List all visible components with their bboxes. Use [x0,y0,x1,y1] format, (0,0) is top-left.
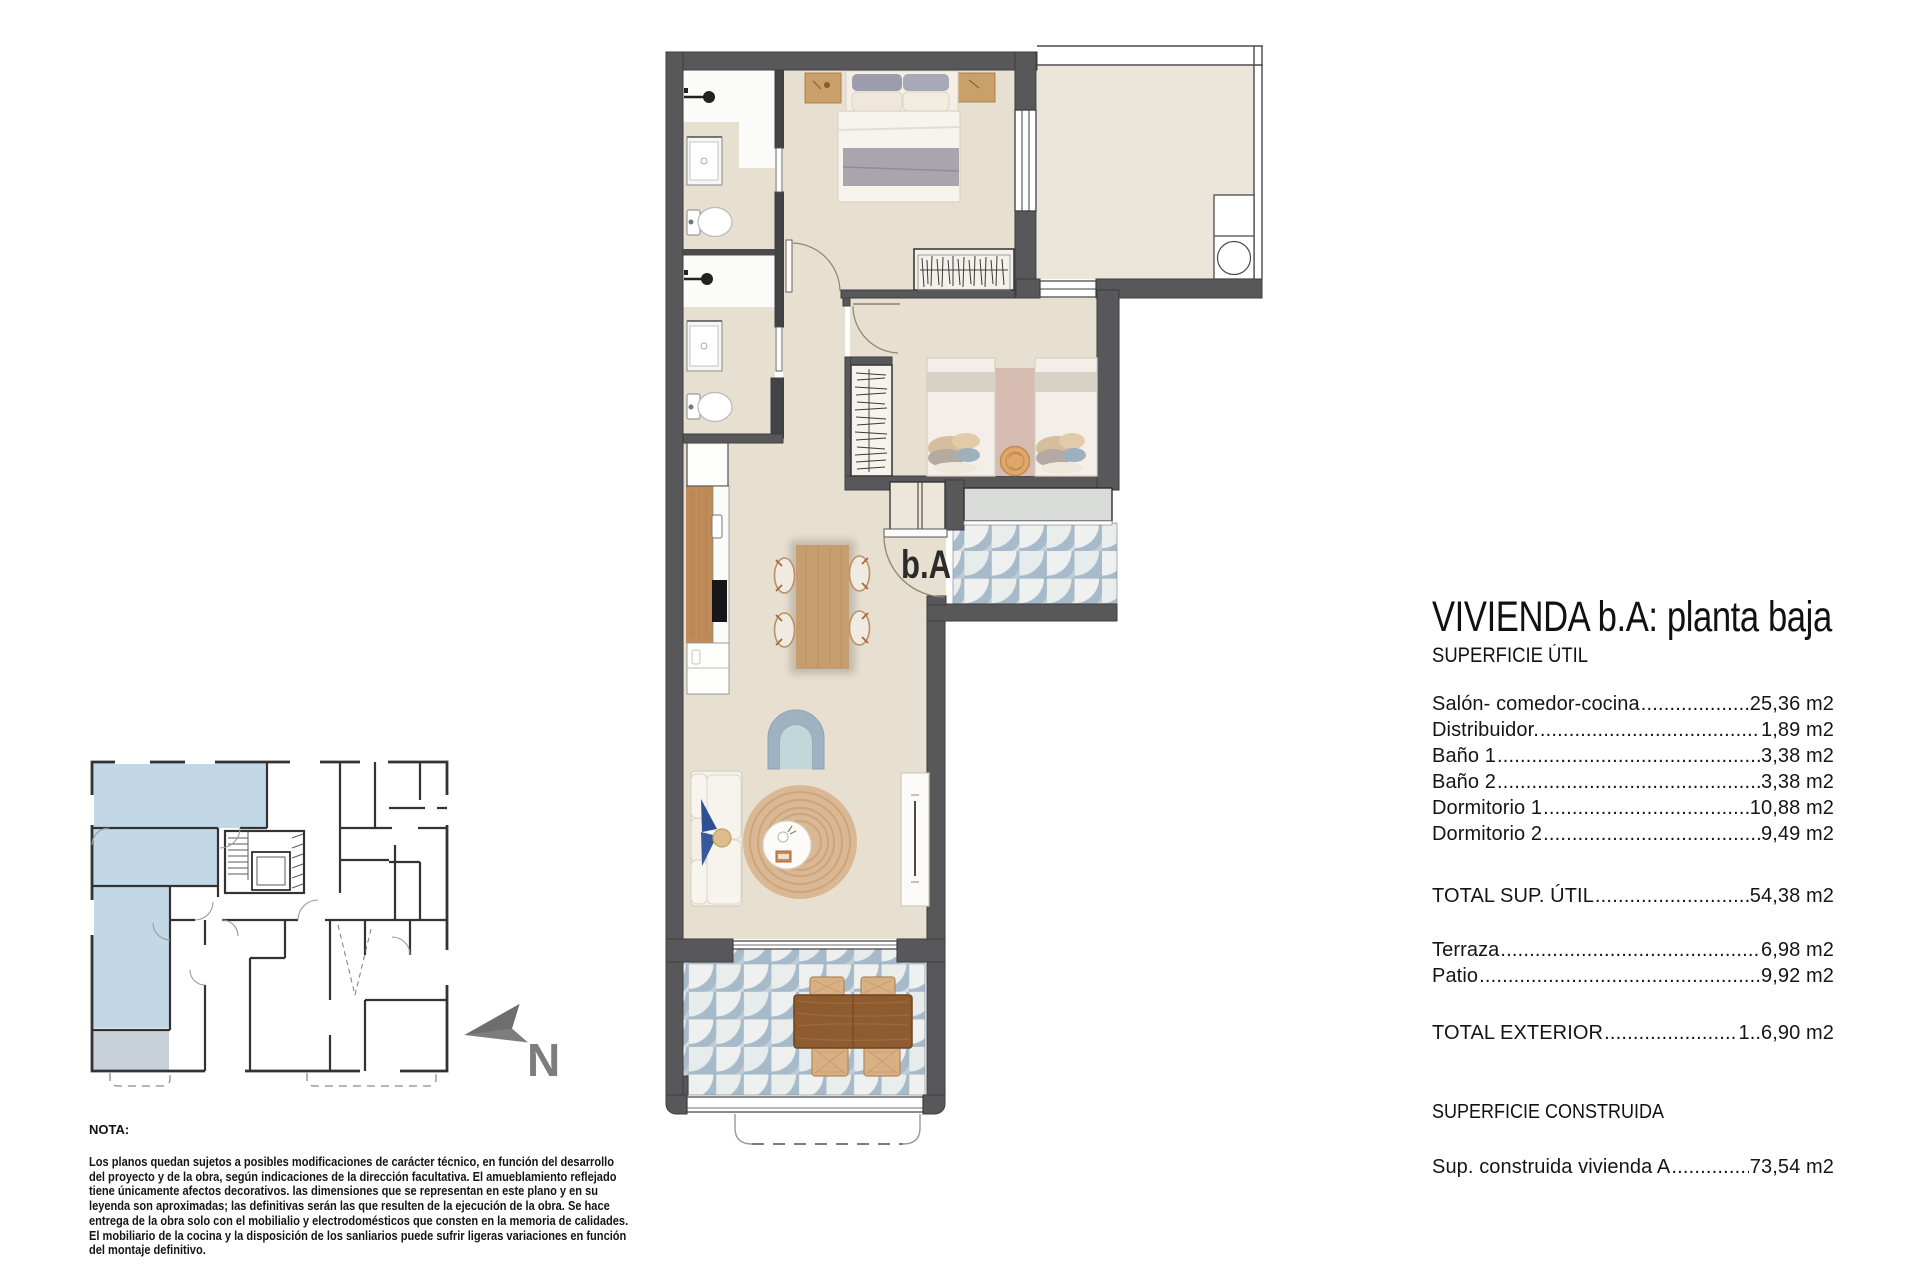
svg-text:N: N [527,1034,560,1086]
svg-text:b.A: b.A [901,543,951,587]
